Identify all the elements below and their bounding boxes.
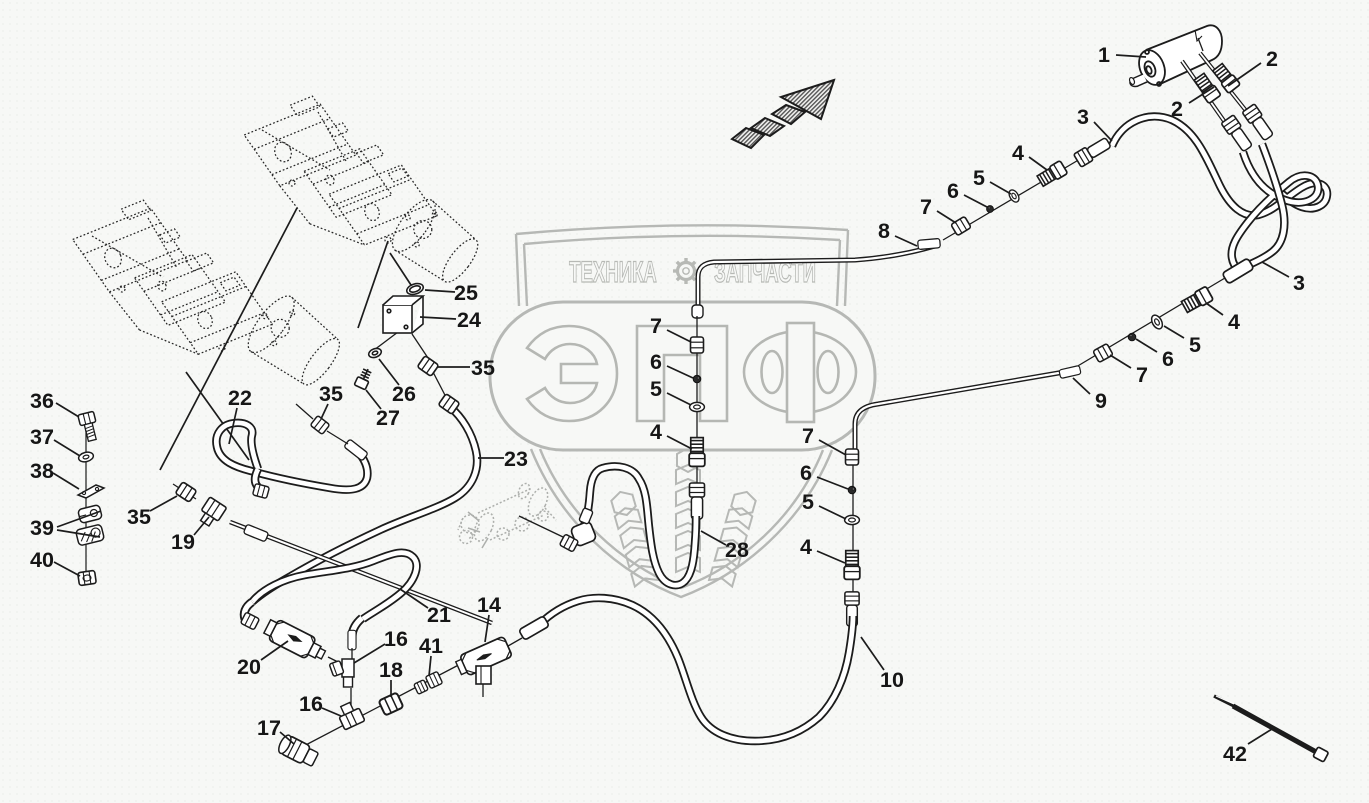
svg-text:36: 36 [30, 389, 54, 413]
svg-text:3: 3 [1293, 271, 1305, 295]
svg-text:1: 1 [1098, 43, 1110, 67]
svg-text:25: 25 [454, 281, 478, 305]
svg-text:35: 35 [319, 382, 343, 406]
svg-text:6: 6 [1162, 347, 1174, 371]
svg-text:7: 7 [1136, 363, 1148, 387]
svg-text:40: 40 [30, 548, 54, 572]
svg-text:8: 8 [878, 219, 890, 243]
svg-text:16: 16 [384, 627, 408, 651]
svg-text:5: 5 [1189, 333, 1201, 357]
svg-text:27: 27 [376, 406, 400, 430]
svg-text:18: 18 [379, 658, 403, 682]
svg-text:28: 28 [725, 538, 749, 562]
svg-text:24: 24 [457, 308, 481, 332]
svg-text:5: 5 [802, 490, 814, 514]
svg-text:7: 7 [802, 424, 814, 448]
svg-text:ТЕХНИКА: ТЕХНИКА [569, 256, 657, 290]
svg-text:20: 20 [237, 655, 261, 679]
svg-text:5: 5 [973, 166, 985, 190]
svg-text:2: 2 [1171, 97, 1183, 121]
svg-text:10: 10 [880, 668, 904, 692]
svg-text:6: 6 [947, 179, 959, 203]
svg-text:23: 23 [504, 447, 528, 471]
svg-text:7: 7 [920, 195, 932, 219]
svg-text:2: 2 [1266, 47, 1278, 71]
svg-text:21: 21 [427, 603, 451, 627]
svg-text:4: 4 [650, 420, 662, 444]
svg-text:22: 22 [228, 386, 252, 410]
svg-text:42: 42 [1223, 742, 1247, 766]
svg-text:3: 3 [1077, 105, 1089, 129]
svg-text:4: 4 [800, 535, 812, 559]
svg-text:37: 37 [30, 425, 54, 449]
svg-text:16: 16 [299, 692, 323, 716]
svg-text:14: 14 [477, 593, 501, 617]
svg-text:7: 7 [650, 314, 662, 338]
svg-text:19: 19 [171, 530, 195, 554]
svg-text:5: 5 [650, 377, 662, 401]
svg-text:39: 39 [30, 516, 54, 540]
svg-text:9: 9 [1095, 389, 1107, 413]
svg-text:4: 4 [1012, 141, 1024, 165]
svg-text:26: 26 [392, 382, 416, 406]
svg-text:6: 6 [800, 461, 812, 485]
svg-text:35: 35 [471, 356, 495, 380]
svg-text:38: 38 [30, 459, 54, 483]
svg-text:35: 35 [127, 505, 151, 529]
svg-text:6: 6 [650, 350, 662, 374]
svg-text:4: 4 [1228, 310, 1240, 334]
svg-text:41: 41 [419, 634, 443, 658]
svg-text:17: 17 [257, 716, 281, 740]
